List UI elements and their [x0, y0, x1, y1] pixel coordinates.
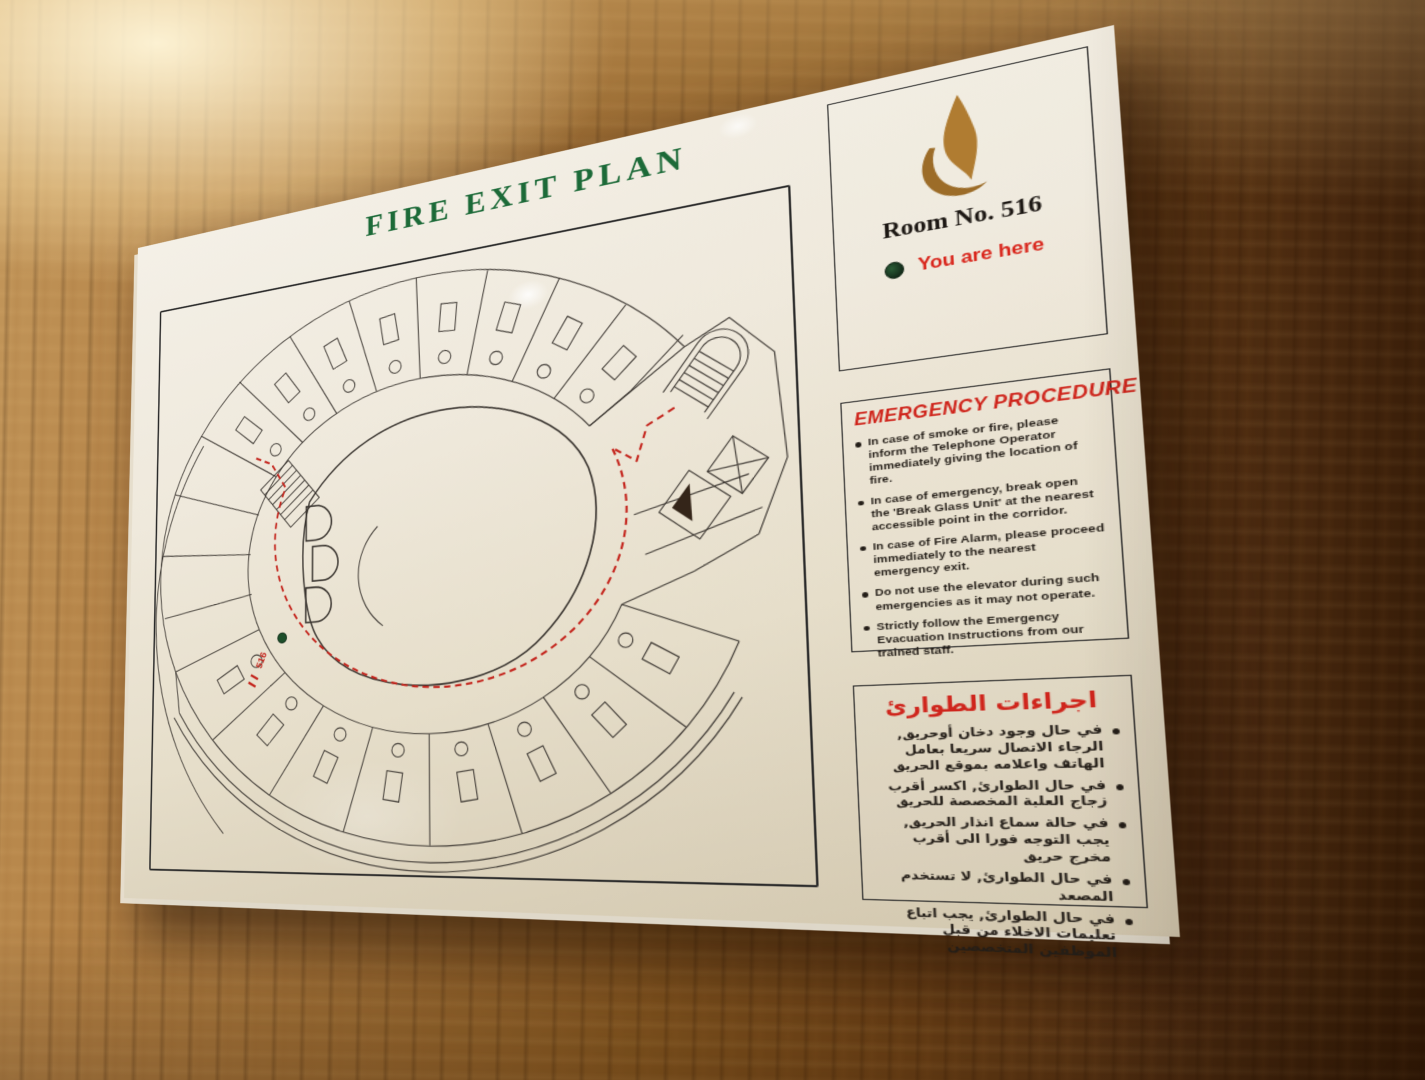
bullet-icon: [1119, 823, 1127, 829]
bullet-icon: [1125, 918, 1133, 924]
elevator-bank: [306, 503, 338, 622]
left-facade-arc: [152, 443, 228, 834]
arabic-procedure-item: في حال الطوارئ, اكسر أقرب زجاج العلبة ال…: [871, 776, 1126, 810]
bottom-inner-arc: [258, 604, 624, 738]
left-inner-arc: [247, 477, 276, 631]
balcony-arc-2: [172, 697, 749, 879]
arabic-procedure-title: اجراءات الطوارئ: [867, 686, 1119, 719]
floor-plan-drawing: 516: [151, 187, 817, 885]
arabic-procedure-item: في حال الطوارئ, لا تستخدم المصعد: [875, 867, 1132, 906]
bullet-icon: [860, 546, 866, 551]
bullet-icon: [1112, 728, 1120, 734]
room-info-box: Room No. 516 You are here: [827, 46, 1108, 371]
arabic-procedure-item: في حال وجود دخان أوحريق, الرجاء الاتصال …: [868, 721, 1122, 774]
plan-room-516-label: 516: [254, 650, 269, 670]
left-staircase: [261, 460, 320, 527]
you-are-here-label: You are here: [917, 234, 1045, 276]
bullet-icon: [858, 500, 864, 505]
bullet-icon: [864, 626, 870, 631]
arabic-procedure-list: في حال وجود دخان أوحريق, الرجاء الاتصال …: [868, 721, 1135, 963]
bullet-icon: [1116, 784, 1124, 790]
balcony-arc-1: [177, 692, 740, 869]
left-outer-arc: [159, 436, 202, 673]
you-are-here-legend-dot: [884, 260, 904, 280]
bullet-icon: [1123, 879, 1131, 885]
emergency-procedure-box: EMERGENCY PROCEDURE In case of smoke or …: [840, 368, 1129, 652]
emergency-procedure-item: Strictly follow the Emergency Evacuation…: [863, 607, 1114, 662]
arabic-procedure-item: في حالة سماع انذار الحريق, يجب التوجه فو…: [872, 815, 1129, 867]
right-staircase: [663, 320, 759, 419]
hotel-flame-logo-icon: [907, 84, 1008, 208]
top-inner-arc: [276, 352, 589, 477]
photo-scene: FIRE EXIT PLAN: [0, 0, 1425, 1080]
bullet-icon: [855, 442, 861, 447]
emergency-procedure-list: In case of smoke or fire, please inform …: [855, 410, 1114, 662]
room-door-ticks: [248, 675, 258, 687]
bottom-outer-arc: [173, 641, 747, 850]
evacuation-route-path: [254, 401, 687, 695]
exit-vestibule: [659, 470, 731, 539]
arabic-procedure-box: اجراءات الطوارئ في حال وجود دخان أوحريق,…: [853, 675, 1148, 909]
bullet-icon: [862, 592, 868, 597]
plan-you-are-here-dot: [278, 633, 287, 644]
floor-plan-box: 516: [149, 185, 819, 888]
